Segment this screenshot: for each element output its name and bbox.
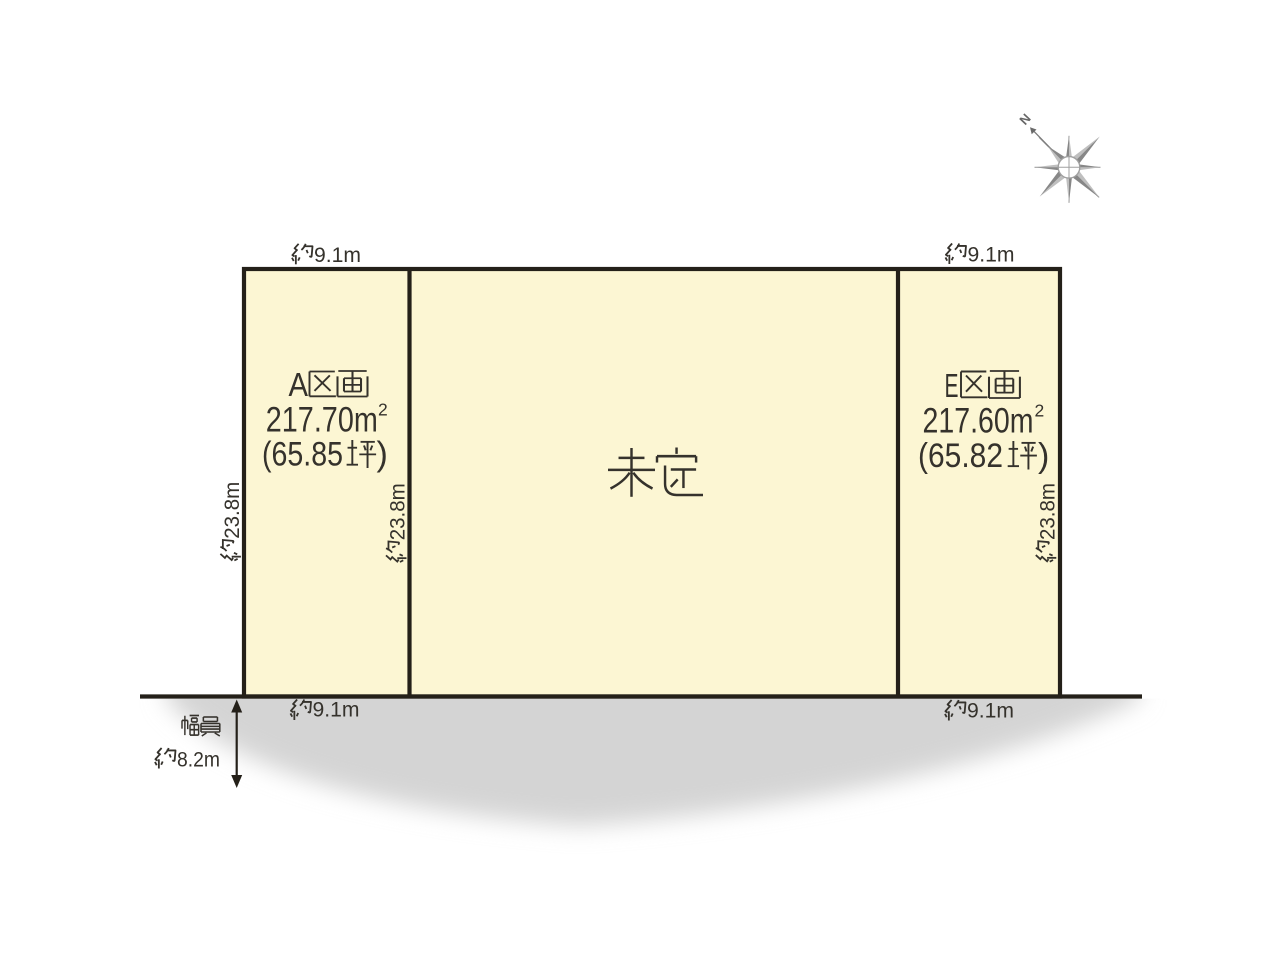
svg-text:9.1m: 9.1m — [313, 699, 360, 722]
svg-text:9.1m: 9.1m — [967, 700, 1014, 723]
svg-text:23.8m: 23.8m — [387, 483, 410, 540]
svg-text:(65.82: (65.82 — [918, 437, 1003, 475]
svg-text:2: 2 — [378, 400, 388, 420]
svg-text:(65.85: (65.85 — [262, 436, 343, 474]
svg-text:E: E — [945, 367, 959, 404]
svg-text:A: A — [289, 366, 309, 403]
svg-text:23.8m: 23.8m — [1036, 483, 1059, 540]
svg-text:2: 2 — [1035, 401, 1045, 421]
svg-text:9.1m: 9.1m — [968, 244, 1015, 267]
svg-text:): ) — [377, 436, 388, 474]
svg-text:217.70m: 217.70m — [266, 400, 378, 440]
svg-text:9.1m: 9.1m — [314, 244, 361, 267]
svg-text:8.2m: 8.2m — [177, 749, 220, 772]
svg-text:217.60m: 217.60m — [923, 401, 1034, 441]
svg-text:): ) — [1038, 437, 1049, 475]
svg-text:23.8m: 23.8m — [221, 482, 244, 539]
